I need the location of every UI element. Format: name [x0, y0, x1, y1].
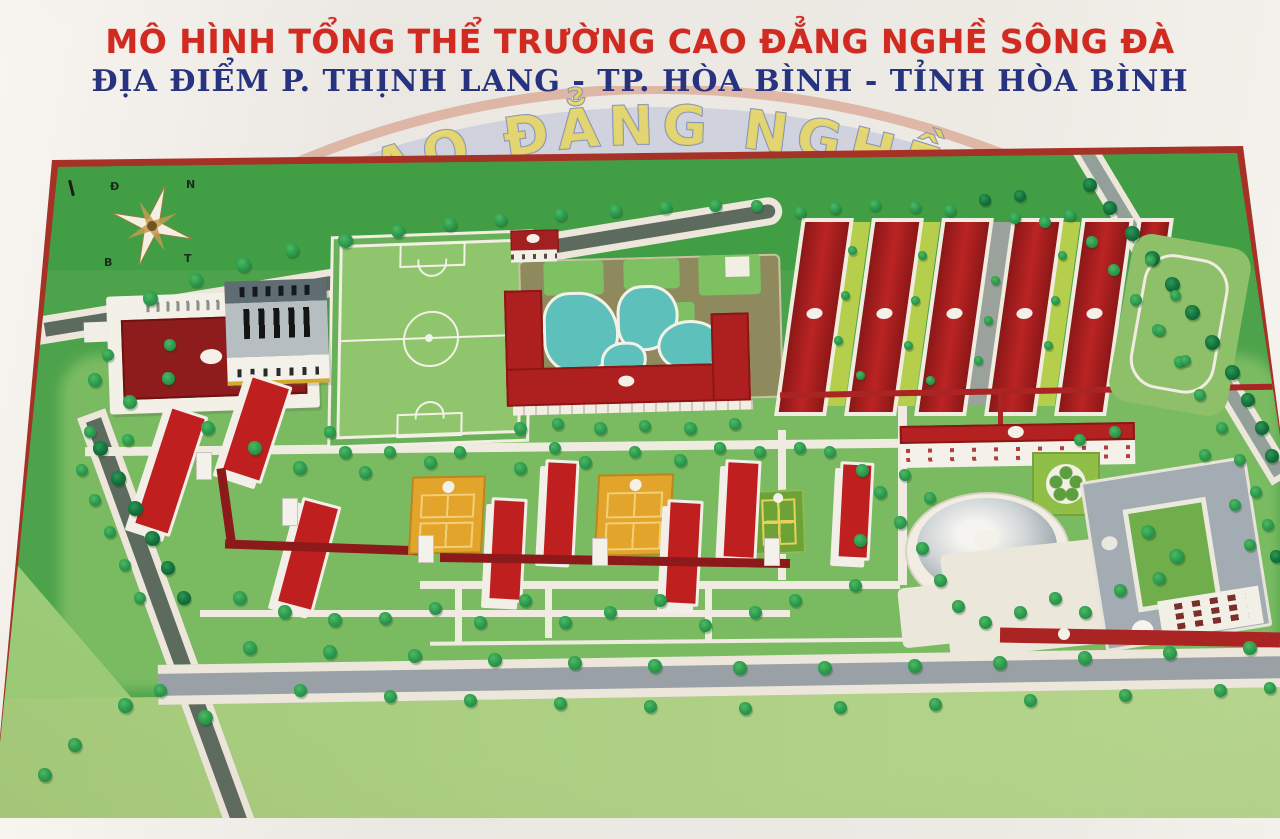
tree-icon	[639, 420, 651, 432]
tree-icon	[1064, 209, 1076, 221]
tree-icon	[328, 613, 342, 627]
tree-icon	[424, 456, 437, 469]
tree-icon	[794, 206, 806, 218]
tree-icon	[1009, 212, 1021, 224]
tree-icon	[549, 442, 561, 454]
tree-icon	[924, 492, 936, 504]
tree-icon	[76, 464, 88, 476]
tree-icon	[88, 373, 102, 387]
tree-icon	[834, 336, 843, 345]
tree-icon	[68, 738, 82, 752]
tree-icon	[848, 246, 857, 255]
tree-icon	[629, 446, 641, 458]
tree-icon	[699, 619, 712, 632]
tree-icon	[118, 698, 133, 713]
tree-icon	[154, 684, 167, 697]
tree-icon	[514, 422, 527, 435]
tree-icon	[1199, 449, 1211, 461]
tree-icon	[1074, 434, 1086, 446]
tree-icon	[1244, 539, 1256, 551]
tree-icon	[324, 426, 336, 438]
tree-icon	[1014, 606, 1027, 619]
tree-icon	[979, 616, 992, 629]
tree-icon	[908, 659, 922, 673]
tree-icon	[729, 418, 741, 430]
tree-icon	[794, 442, 806, 454]
tree-icon	[123, 395, 137, 409]
tree-icon	[359, 466, 372, 479]
tree-icon	[1234, 454, 1246, 466]
tree-icon	[789, 594, 802, 607]
tree-icon	[929, 698, 942, 711]
tree-icon	[934, 574, 947, 587]
tree-icon	[1083, 178, 1097, 192]
tree-icon	[323, 645, 337, 659]
tree-icon	[1130, 294, 1142, 306]
tree-icon	[391, 224, 405, 238]
tree-icon	[856, 464, 869, 477]
tree-icon	[979, 194, 991, 206]
tree-icon	[751, 200, 763, 212]
tree-icon	[1114, 584, 1127, 597]
tree-icon	[849, 579, 862, 592]
tree-icon	[856, 371, 865, 380]
tree-icon	[189, 273, 203, 287]
tree-icon	[294, 684, 307, 697]
tree-icon	[474, 616, 487, 629]
tree-icon	[709, 199, 722, 212]
tree-icon	[659, 201, 672, 214]
tree-icon	[162, 372, 175, 385]
compass-south-label: B	[104, 256, 112, 269]
tree-icon	[494, 213, 507, 226]
tree-icon	[1103, 201, 1117, 215]
tree-icon	[128, 501, 143, 516]
tree-icon	[841, 291, 850, 300]
tree-icon	[93, 441, 108, 456]
tree-icon	[1119, 689, 1132, 702]
tree-icon	[579, 456, 592, 469]
tree-icon	[818, 661, 832, 675]
tree-icon	[119, 559, 131, 571]
tree-icon	[1145, 255, 1156, 266]
tree-icon	[84, 426, 96, 438]
tree-icon	[1214, 684, 1227, 697]
tree-icon	[1229, 499, 1241, 511]
tree-icon	[984, 316, 993, 325]
tree-icon	[143, 291, 158, 306]
tree-icon	[824, 446, 836, 458]
poster-subtitle: ĐỊA ĐIỂM P. THỊNH LANG - TP. HÒA BÌNH - …	[0, 64, 1280, 99]
tree-icon	[1109, 426, 1121, 438]
tree-icon	[519, 594, 532, 607]
tree-icon	[243, 641, 257, 655]
tree-icon	[1250, 486, 1262, 498]
tree-icon	[278, 605, 292, 619]
tree-icon	[1044, 341, 1053, 350]
tree-icon	[714, 442, 726, 454]
tree-icon	[911, 296, 920, 305]
compass-north-label: N	[186, 178, 195, 191]
tree-icon	[285, 243, 299, 257]
tree-icon	[874, 486, 887, 499]
tree-icon	[236, 257, 251, 272]
tree-icon	[1194, 389, 1206, 401]
tree-icon	[122, 434, 134, 446]
tree-icon	[164, 339, 176, 351]
tree-icon	[739, 702, 752, 715]
tree-icon	[454, 446, 466, 458]
tree-icon	[1255, 421, 1269, 435]
compass-rose: Đ N B T	[104, 178, 200, 274]
tree-icon	[754, 446, 766, 458]
tree-icon	[1051, 296, 1060, 305]
tree-icon	[1165, 277, 1180, 292]
compass-east-label: Đ	[110, 180, 119, 193]
tree-icon	[384, 690, 397, 703]
tree-icon	[1262, 519, 1274, 531]
tree-icon	[1265, 449, 1279, 463]
tree-icon	[1163, 646, 1177, 660]
tree-icon	[918, 251, 927, 260]
tree-icon	[102, 349, 114, 361]
poster-title: MÔ HÌNH TỔNG THỂ TRƯỜNG CAO ĐẲNG NGHỀ SÔ…	[0, 22, 1280, 61]
tree-icon	[1180, 355, 1191, 366]
tree-icon	[514, 462, 527, 475]
tree-icon	[834, 701, 847, 714]
tree-icon	[1039, 216, 1051, 228]
tree-icon	[869, 199, 881, 211]
tree-icon	[926, 376, 935, 385]
tree-icon	[644, 700, 657, 713]
tree-icon	[384, 446, 396, 458]
tree-icon	[894, 516, 907, 529]
tree-icon	[1205, 335, 1220, 350]
tree-icon	[248, 441, 262, 455]
tree-icon	[654, 594, 667, 607]
tree-icon	[488, 653, 502, 667]
tree-icon	[749, 606, 762, 619]
tree-icon	[161, 561, 175, 575]
tree-icon	[1170, 290, 1181, 301]
tree-icon	[1185, 305, 1200, 320]
tree-icon	[111, 471, 126, 486]
tree-icon	[1014, 190, 1026, 202]
tree-icon	[909, 201, 921, 213]
tree-icon	[993, 656, 1007, 670]
tree-icon	[379, 612, 392, 625]
tree-icon	[594, 422, 607, 435]
tree-icon	[609, 204, 622, 217]
tree-icon	[648, 659, 662, 673]
tree-icon	[339, 446, 352, 459]
tree-icon	[916, 542, 929, 555]
tree-icon	[134, 592, 146, 604]
tree-icon	[293, 461, 307, 475]
tree-icon	[338, 233, 353, 248]
tree-icon	[408, 649, 422, 663]
tree-icon	[554, 208, 567, 221]
tree-icon	[177, 591, 191, 605]
tree-icon	[899, 469, 911, 481]
tree-icon	[1241, 393, 1255, 407]
tree-icon	[1086, 236, 1098, 248]
tree-icon	[1225, 365, 1240, 380]
tree-icon	[974, 356, 983, 365]
tree-icon	[443, 217, 457, 231]
tree-icon	[684, 422, 697, 435]
tree-icon	[233, 591, 247, 605]
tree-icon	[1270, 550, 1280, 563]
tree-icon	[1078, 651, 1092, 665]
tree-icon	[38, 768, 52, 782]
tree-icon	[604, 606, 617, 619]
tree-icon	[1216, 422, 1228, 434]
tree-icon	[568, 656, 582, 670]
tree-icon	[1243, 641, 1257, 655]
compass-west-label: T	[184, 252, 192, 265]
tree-icon	[552, 418, 564, 430]
tree-icon	[429, 602, 442, 615]
tree-icon	[104, 526, 116, 538]
tree-icon	[1108, 264, 1120, 276]
tree-icon	[198, 710, 213, 725]
tree-icon	[554, 697, 567, 710]
tree-icon	[733, 661, 747, 675]
tree-icon	[944, 204, 956, 216]
tree-icon	[1125, 226, 1140, 241]
tree-icon	[1049, 592, 1062, 605]
tree-icon	[1024, 694, 1037, 707]
tree-icon	[854, 534, 867, 547]
tree-icon	[952, 600, 965, 613]
tree-icon	[89, 494, 101, 506]
tree-icon	[201, 421, 215, 435]
tree-icon	[674, 454, 687, 467]
tree-icon	[904, 341, 913, 350]
tree-icon	[1058, 251, 1067, 260]
tree-icon	[1264, 682, 1276, 694]
tree-icon	[559, 616, 572, 629]
tree-icon	[145, 531, 160, 546]
tree-icon	[464, 694, 477, 707]
tree-icon	[1155, 325, 1166, 336]
tree-icon	[1079, 606, 1092, 619]
tree-icon	[991, 276, 1000, 285]
tree-icon	[829, 202, 841, 214]
